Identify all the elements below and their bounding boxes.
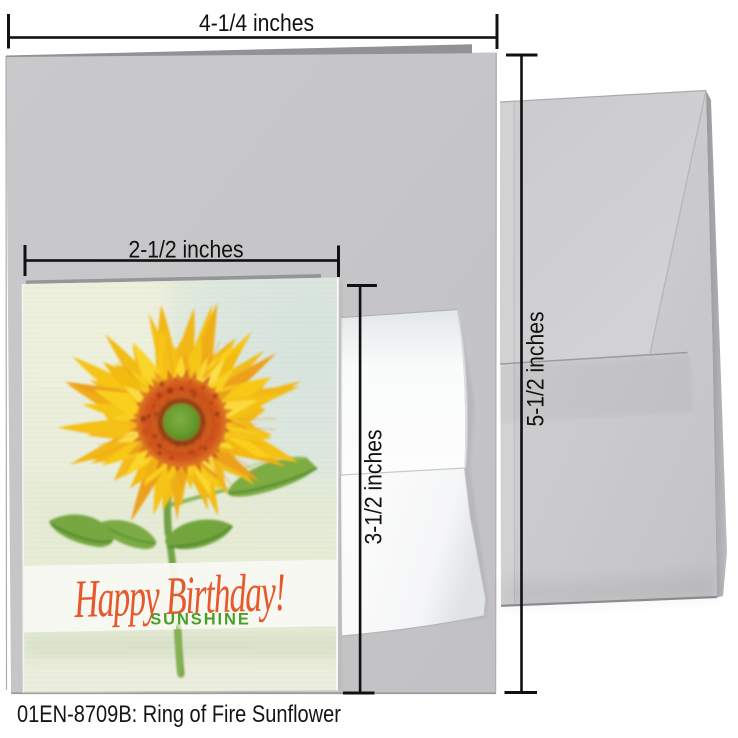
svg-text:2-1/2 inches: 2-1/2 inches xyxy=(128,236,243,263)
svg-text:4-1/4 inches: 4-1/4 inches xyxy=(199,10,314,37)
svg-text:3-1/2 inches: 3-1/2 inches xyxy=(360,429,387,544)
svg-text:01EN-8709B: Ring of Fire Sunfl: 01EN-8709B: Ring of Fire Sunflower xyxy=(17,700,341,727)
svg-text:5-1/2 inches: 5-1/2 inches xyxy=(522,311,549,426)
svg-text:SUNSHINE: SUNSHINE xyxy=(150,611,250,629)
